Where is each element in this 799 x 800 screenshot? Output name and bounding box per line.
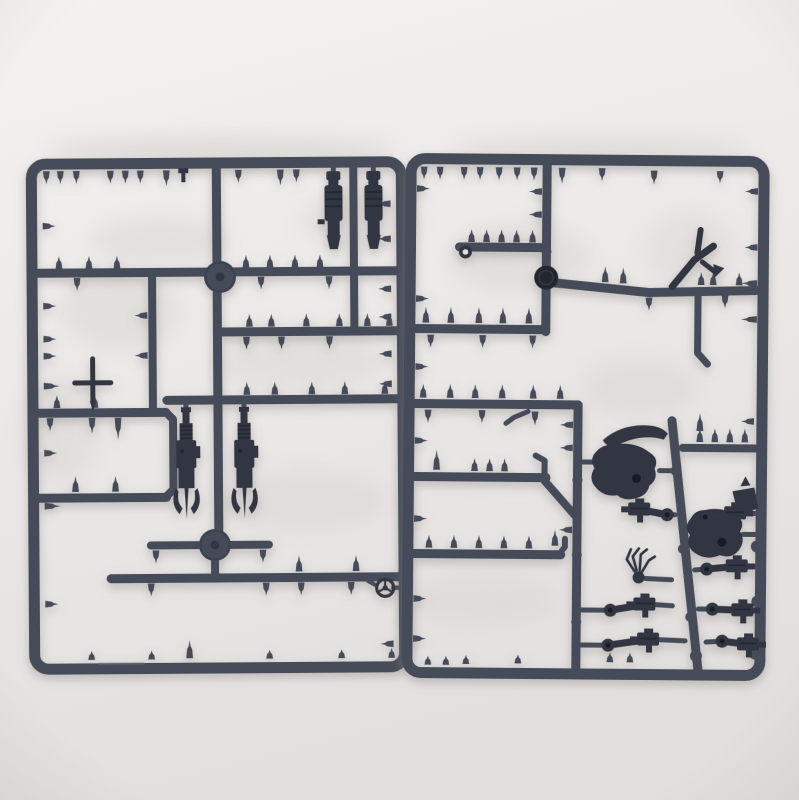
photo-of-model-sprues — [0, 0, 799, 800]
vignette — [0, 0, 799, 800]
sprue-photo-canvas — [0, 0, 799, 800]
